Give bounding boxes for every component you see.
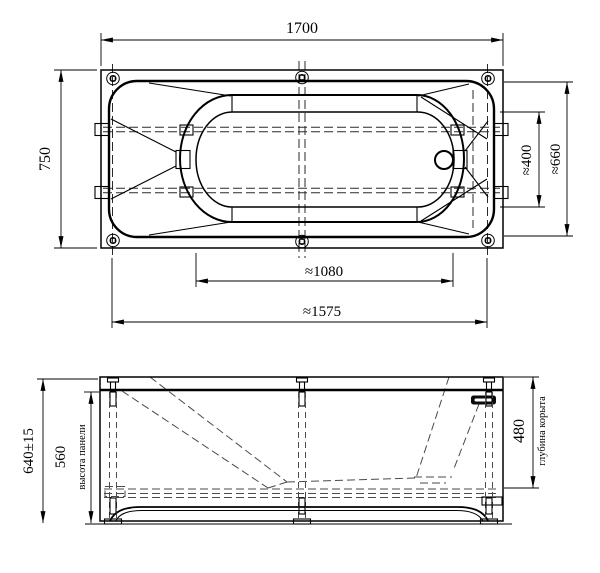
side-hidden-lines — [104, 377, 499, 498]
dim-label-bowl-depth: 480 — [511, 419, 528, 443]
mounting-brackets — [95, 124, 508, 199]
dim-label-feet-span: ≈1575 — [303, 304, 341, 320]
dim-label-bowl-depth-caption: глубина корыта — [537, 396, 548, 466]
dimension-bottom-width: ≈400 — [500, 112, 545, 207]
dimension-panel-height: 560 высота панели — [53, 392, 99, 523]
dim-label-bottom-width: ≈400 — [519, 145, 535, 176]
bracket-hidden — [105, 487, 125, 497]
dimension-feet-span: ≈1575 — [112, 258, 487, 328]
drawing-svg: 1700 750 ≈400 ≈660 ≈1080 ≈1575 — [0, 0, 600, 573]
dimension-bowl-depth: 480 глубина корыта — [504, 377, 548, 488]
end-step-left — [176, 151, 190, 169]
dim-label-rim-width: ≈660 — [548, 144, 564, 175]
top-view: 1700 750 ≈400 ≈660 ≈1080 ≈1575 — [37, 20, 573, 328]
bathtub-technical-drawing: 1700 750 ≈400 ≈660 ≈1080 ≈1575 — [0, 0, 600, 573]
side-body — [100, 377, 503, 521]
dim-label-panel-height-caption: высота панели — [77, 424, 88, 490]
side-view: 640±15 560 высота панели 480 глубина кор… — [21, 377, 548, 524]
plan-outline — [95, 70, 508, 248]
leg-center — [294, 378, 311, 524]
dimension-bottom-length: ≈1080 — [196, 253, 453, 287]
drain-hole — [435, 151, 453, 169]
side-legs — [105, 378, 498, 524]
dimension-rim-width: ≈660 — [504, 82, 573, 236]
dim-label-length: 1700 — [286, 20, 318, 37]
leg-left — [105, 378, 122, 524]
rim-outline — [109, 81, 494, 237]
opening-steps — [232, 95, 417, 222]
dim-label-bottom-length: ≈1080 — [305, 264, 343, 280]
dimension-length: 1700 — [101, 20, 503, 66]
dim-label-width: 750 — [37, 147, 54, 171]
dim-label-overall-height: 640±15 — [21, 428, 37, 474]
dimension-width: 750 — [37, 70, 97, 248]
dim-label-panel-height: 560 — [53, 446, 69, 469]
